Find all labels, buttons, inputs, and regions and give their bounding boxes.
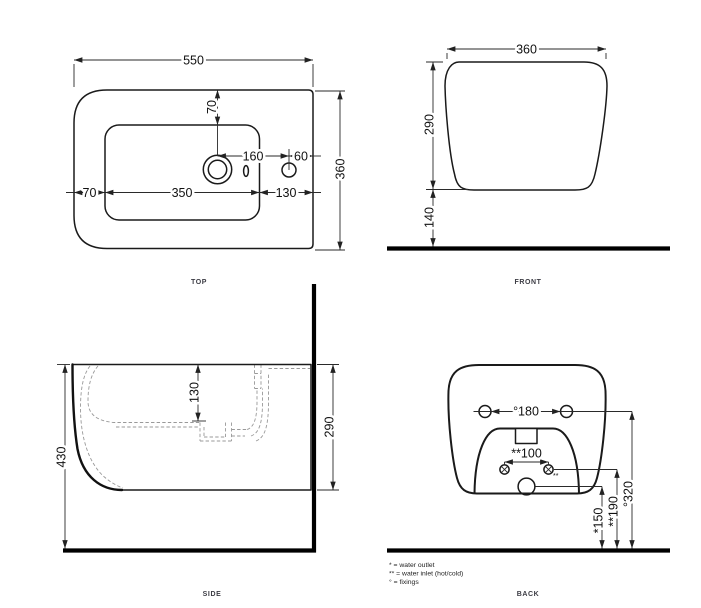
legend-fixings: ° = fixings	[389, 578, 419, 586]
siphon-box	[516, 429, 538, 444]
bidet-technical-drawing: 550 360 70 160 60 70 350 130 TOP 360 290…	[0, 0, 701, 608]
side-view-label: SIDE	[203, 591, 222, 598]
top-view-label: TOP	[191, 279, 207, 286]
dim-back-inlet-height: **190	[607, 496, 621, 527]
dim-top-right-offset: 130	[276, 186, 297, 200]
dim-side-overall-height: 430	[55, 447, 69, 468]
top-basin-outline	[105, 125, 260, 220]
overflow-slot	[244, 166, 249, 177]
top-outer-outline	[74, 90, 313, 249]
dim-top-basin-length: 350	[172, 186, 193, 200]
front-view-label: FRONT	[514, 279, 541, 286]
side-front-curve	[73, 365, 123, 491]
inlet-note-mark: **	[553, 473, 559, 480]
dim-front-lines	[433, 49, 606, 247]
tap-hole-inner	[208, 160, 226, 178]
dim-back-fixings-height: °320	[622, 481, 636, 507]
top-view: 550 360 70 160 60 70 350 130 TOP	[66, 54, 348, 287]
dim-top-rim-offset: 70	[205, 100, 219, 114]
dim-back-fixings-spacing: °180	[513, 405, 539, 419]
dim-back-outlet-height: *150	[592, 508, 606, 534]
dim-front-body-height: 290	[423, 114, 437, 135]
legend: * = water outlet ** = water inlet (hot/c…	[389, 562, 463, 586]
dim-top-left-offset: 70	[83, 186, 97, 200]
dim-top-overall-depth: 360	[334, 159, 348, 180]
back-view-label: BACK	[517, 591, 540, 598]
dim-side-basin-depth: 130	[188, 382, 202, 403]
water-inlets	[500, 465, 553, 474]
legend-water-outlet: * = water outlet	[389, 562, 435, 569]
dim-front-overall-width: 360	[516, 43, 537, 57]
dim-top-tap-to-hole: 160	[243, 150, 264, 164]
dim-top-hole-to-edge: 60	[294, 150, 308, 164]
back-view: °180 **100 ** °320 **190 *150 * = water …	[387, 365, 670, 598]
dim-top-overall-width: 550	[183, 54, 204, 68]
legend-water-inlet: ** = water inlet (hot/cold)	[389, 571, 463, 578]
dim-front-floor-clearance: 140	[423, 207, 437, 228]
front-view: 360 290 140 FRONT	[387, 43, 670, 287]
front-body-outline	[445, 62, 607, 190]
dim-side-body-height: 290	[323, 417, 337, 438]
water-outlet-hole	[518, 478, 535, 495]
side-view: 430 130 290 SIDE	[55, 284, 340, 598]
dim-back-inlet-spacing: **100	[511, 447, 542, 461]
technical-drawing-page: 550 360 70 160 60 70 350 130 TOP 360 290…	[0, 0, 701, 608]
